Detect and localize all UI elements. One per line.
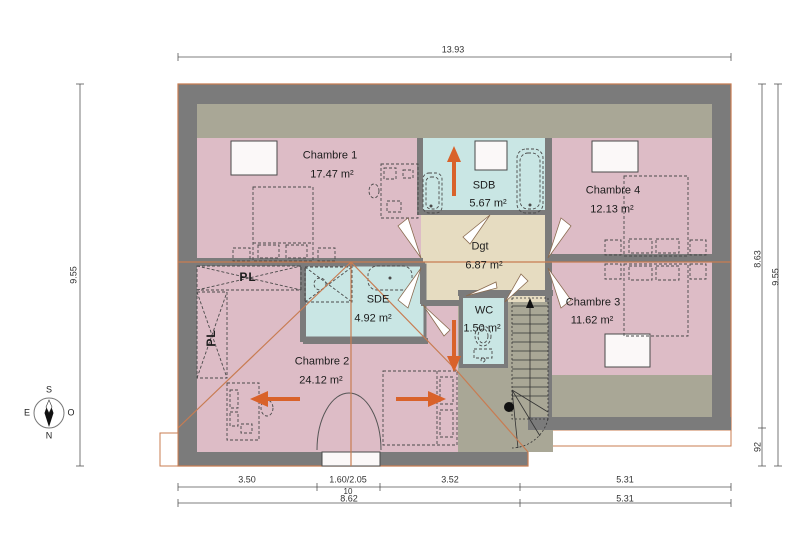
compass-rose — [34, 398, 64, 428]
compass-south: S — [46, 386, 52, 395]
dim-bottom-seg2: 1.60/2.05 — [329, 476, 367, 485]
room-area-chambre4: 12.13 m² — [590, 205, 633, 216]
room-area-wc: 1.50 m² — [463, 324, 500, 335]
compass-west: O — [67, 409, 74, 418]
room-area-dgt: 6.87 m² — [465, 261, 502, 272]
stair-newel-post — [504, 402, 514, 412]
room-label-chambre3: Chambre 3 — [566, 298, 620, 309]
dim-right-lower: 92 — [754, 442, 763, 452]
dim-bottom-total1: 8.62 — [340, 495, 358, 504]
room-label-chambre1: Chambre 1 — [303, 151, 357, 162]
dim-bottom-seg3: 3.52 — [441, 476, 459, 485]
dim-bottom-total2: 5.31 — [616, 495, 634, 504]
floor-plan-page: Chambre 1 17.47 m² SDB 5.67 m² Chambre 4… — [0, 0, 800, 553]
window-chambre3 — [605, 334, 650, 367]
window-chambre4 — [592, 141, 638, 172]
compass-north: N — [46, 432, 53, 441]
room-label-sdb: SDB — [473, 181, 496, 192]
dim-right-main: 8.63 — [754, 250, 763, 268]
room-area-sdb: 5.67 m² — [469, 199, 506, 210]
closet-label-pl-horizontal: PL — [239, 271, 256, 283]
room-label-chambre4: Chambre 4 — [586, 186, 640, 197]
compass-east: E — [24, 409, 30, 418]
dim-right-total: 9.55 — [772, 268, 781, 286]
left-step-out — [160, 433, 178, 466]
dim-left-height: 9.55 — [70, 266, 79, 284]
dim-top-width: 13.93 — [442, 46, 465, 55]
window-sdb — [475, 141, 507, 170]
room-label-sde: SDE — [367, 295, 390, 306]
floor-plan-drawing — [0, 0, 800, 553]
dim-bottom-seg4: 5.31 — [616, 476, 634, 485]
room-area-chambre1: 17.47 m² — [310, 170, 353, 181]
room-area-sde: 4.92 m² — [354, 314, 391, 325]
window-chambre1 — [231, 141, 277, 175]
room-label-wc: WC — [475, 306, 493, 317]
closet-label-pl-vertical: PL — [205, 329, 217, 346]
dim-bottom-seg1: 3.50 — [238, 476, 256, 485]
lower-roof-band — [528, 430, 731, 446]
room-label-chambre2: Chambre 2 — [295, 357, 349, 368]
room-label-dgt: Dgt — [471, 242, 488, 253]
room-area-chambre2: 24.12 m² — [299, 376, 342, 387]
room-area-chambre3: 11.62 m² — [571, 316, 614, 327]
